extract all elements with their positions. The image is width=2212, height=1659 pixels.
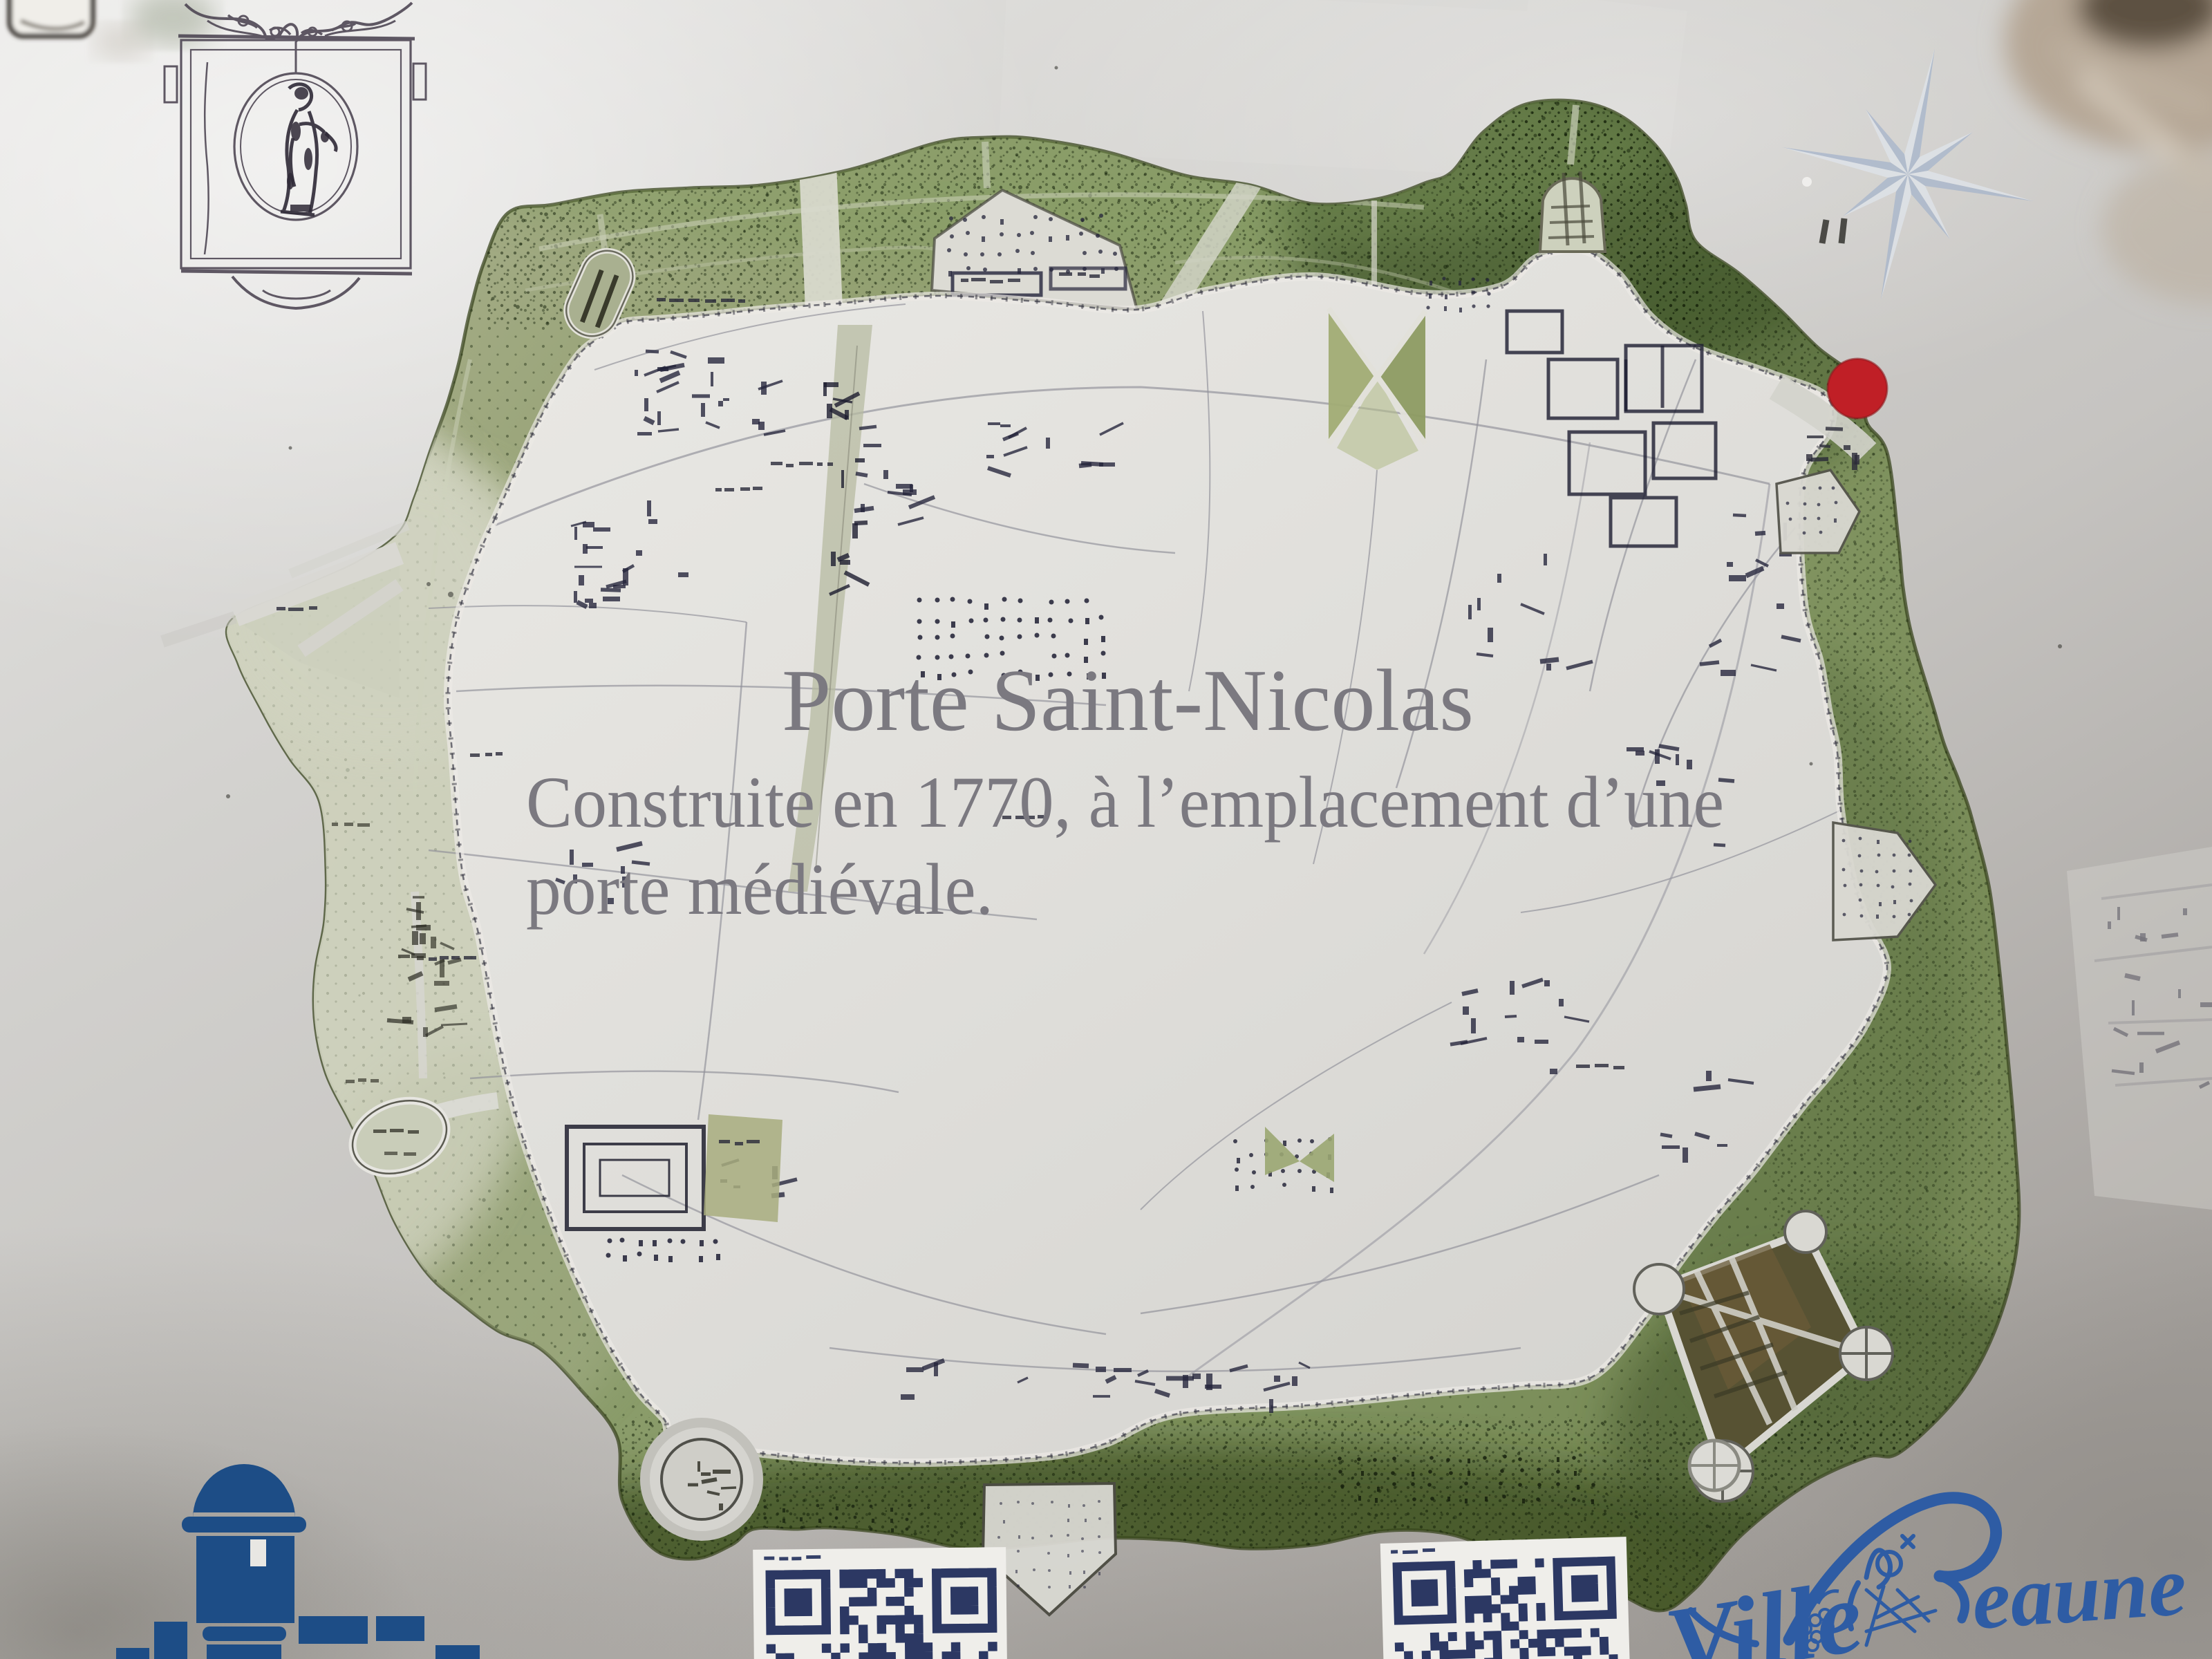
svg-text:eaune: eaune bbox=[1969, 1538, 2189, 1647]
svg-text:porte médiévale.: porte médiévale. bbox=[526, 849, 993, 930]
svg-text:Construite en 1770, à l’emplac: Construite en 1770, à l’emplacement d’un… bbox=[526, 762, 1724, 843]
svg-text:Porte Saint-Nicolas: Porte Saint-Nicolas bbox=[782, 651, 1474, 749]
